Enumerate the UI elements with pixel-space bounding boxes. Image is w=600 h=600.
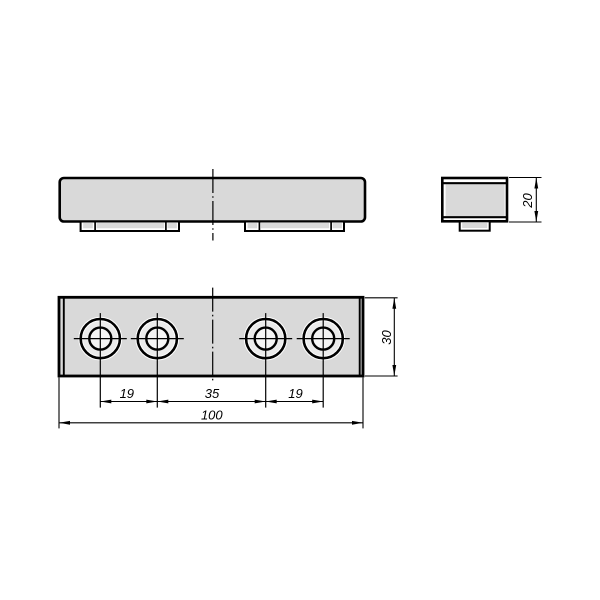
svg-text:100: 100 [201, 408, 223, 423]
svg-text:19: 19 [288, 386, 302, 401]
svg-text:30: 30 [379, 330, 394, 345]
svg-text:20: 20 [520, 193, 535, 209]
svg-text:19: 19 [120, 386, 134, 401]
svg-text:35: 35 [205, 386, 220, 401]
